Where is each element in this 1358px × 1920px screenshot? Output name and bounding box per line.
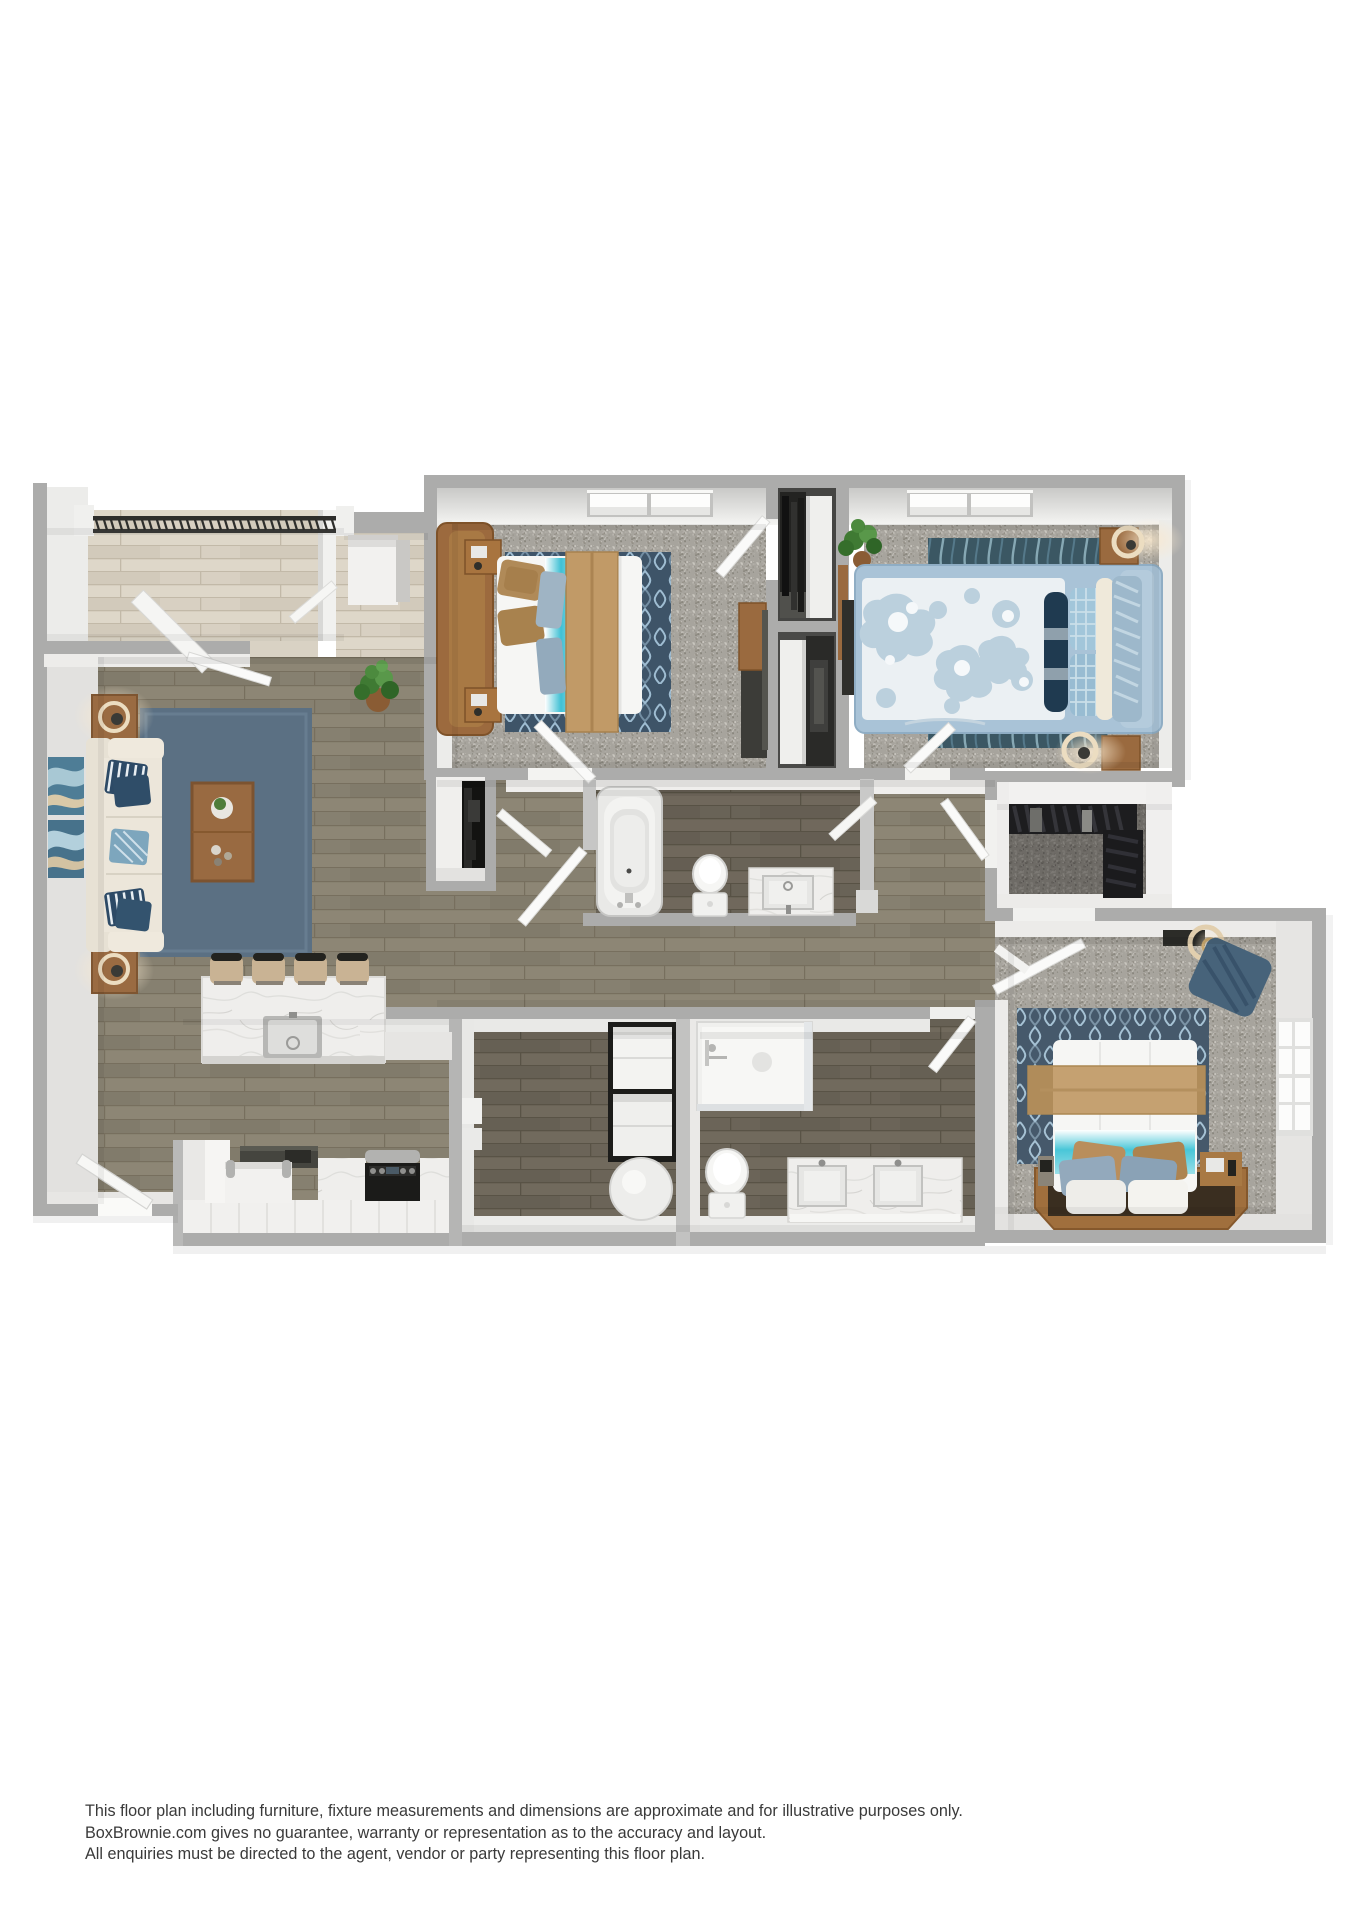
svg-text:This floor plan including furn: This floor plan including furniture, fix… — [85, 1802, 963, 1820]
svg-text:All enquiries must be directed: All enquiries must be directed to the ag… — [85, 1845, 705, 1863]
svg-text:BoxBrownie.com gives no guaran: BoxBrownie.com gives no guarantee, warra… — [85, 1824, 766, 1842]
